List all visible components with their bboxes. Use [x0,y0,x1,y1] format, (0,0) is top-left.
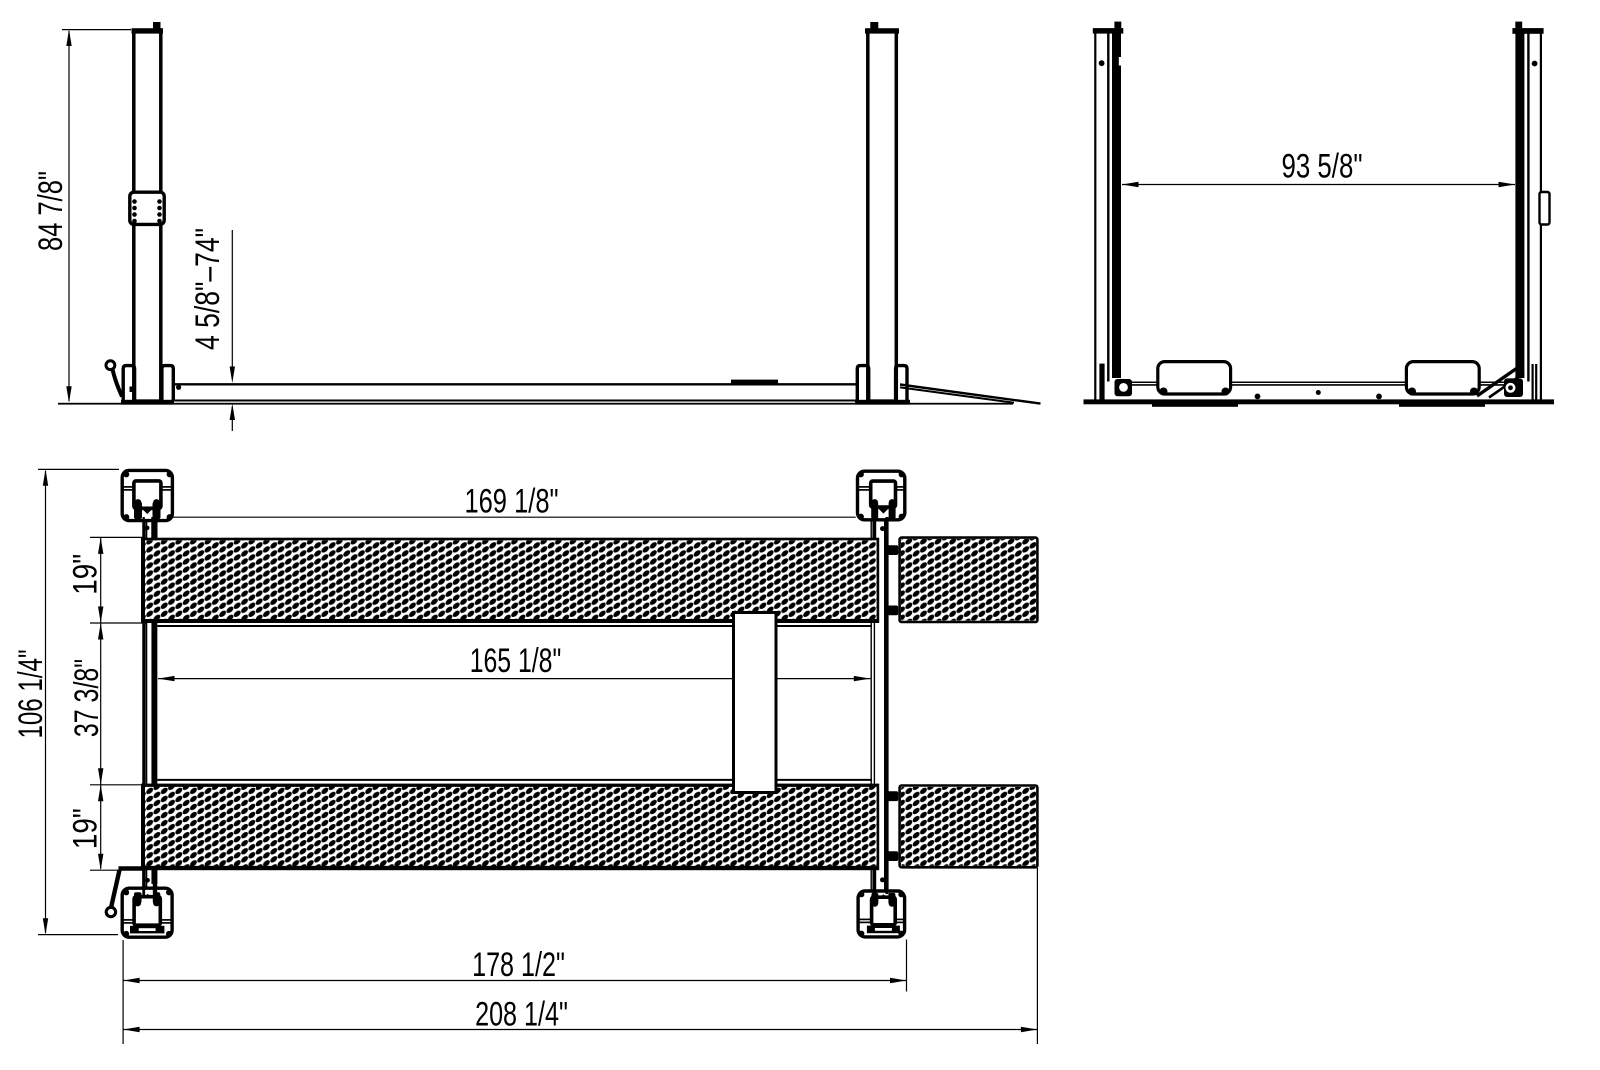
svg-text:106 1/4": 106 1/4" [12,649,50,738]
svg-text:84 7/8": 84 7/8" [33,171,70,251]
svg-text:208 1/4": 208 1/4" [475,996,568,1034]
svg-text:37 3/8": 37 3/8" [68,659,106,737]
svg-text:93 5/8": 93 5/8" [1282,148,1363,185]
svg-text:4 5/8"–74": 4 5/8"–74" [189,228,227,350]
svg-text:19": 19" [66,808,104,849]
svg-text:169 1/8": 169 1/8" [464,483,558,520]
svg-text:19": 19" [66,554,104,595]
svg-text:165 1/8": 165 1/8" [470,642,562,680]
svg-text:178 1/2": 178 1/2" [472,946,565,984]
